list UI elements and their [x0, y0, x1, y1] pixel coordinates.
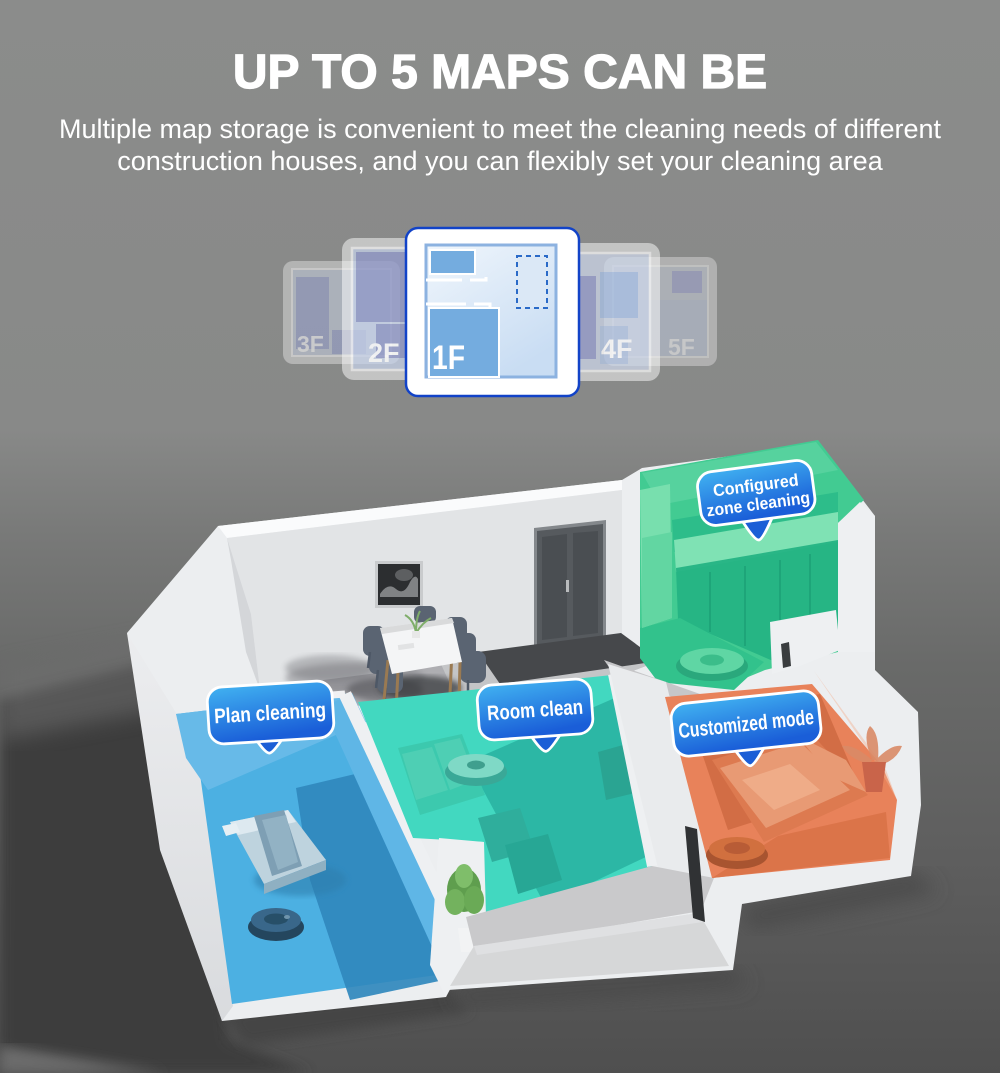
svg-text:Multiple map storage is conven: Multiple map storage is convenient to me… [59, 114, 942, 144]
svg-text:2F: 2F [368, 338, 400, 368]
svg-text:4F: 4F [601, 334, 633, 364]
svg-text:5F: 5F [668, 334, 695, 360]
svg-text:UP TO 5 MAPS CAN BE: UP TO 5 MAPS CAN BE [233, 46, 767, 99]
svg-text:3F: 3F [297, 331, 324, 357]
svg-text:1F: 1F [432, 339, 465, 377]
svg-text:construction houses, and you c: construction houses, and you can flexibl… [117, 146, 883, 176]
